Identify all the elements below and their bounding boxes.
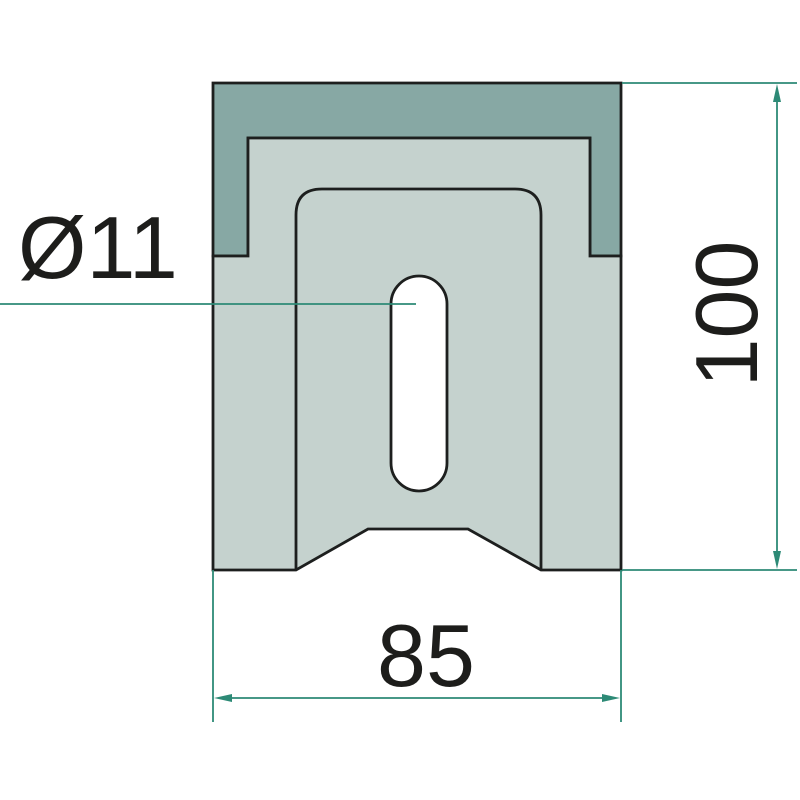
arrow-up-icon (773, 84, 781, 102)
diameter-label: Ø11 (18, 204, 178, 292)
arrow-down-icon (773, 551, 781, 569)
drawing-canvas: Ø11 100 85 (0, 0, 800, 800)
slot-hole (391, 276, 447, 491)
height-label: 100 (683, 241, 771, 388)
arrow-left-icon (214, 694, 232, 702)
width-label: 85 (377, 612, 475, 700)
arrow-right-icon (602, 694, 620, 702)
